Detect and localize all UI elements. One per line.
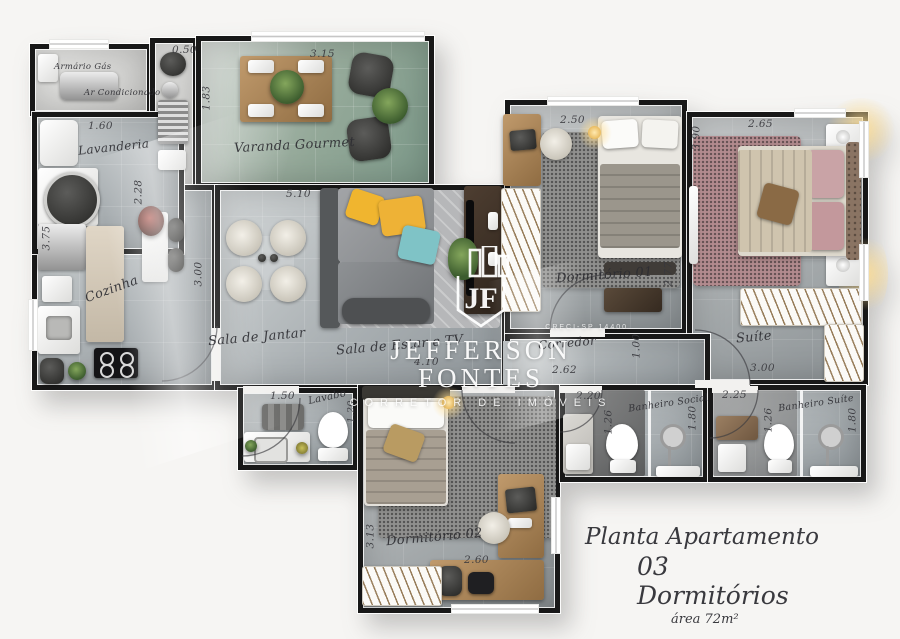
- window-suite-right-2: [860, 245, 868, 300]
- floor-plan-canvas: 0.50 3.15 1.83 1.60 2.28 3.75 5.10 3.00 …: [0, 0, 900, 639]
- title-line2: 03 Dormitórios: [637, 552, 825, 610]
- table-plant: [270, 70, 304, 104]
- watermark-creci: CRECI-SP 14400: [545, 324, 628, 331]
- monitor: [505, 486, 537, 513]
- shaft-box: [158, 150, 186, 170]
- label-suite: Suíte: [735, 328, 772, 346]
- window-suite-right-1: [860, 122, 868, 177]
- bsuite-sink: [718, 444, 746, 472]
- valve: [162, 82, 178, 98]
- bed-blanket: [600, 164, 680, 248]
- keyboard: [508, 518, 532, 528]
- dim-suite-bottom: 3.00: [750, 362, 775, 374]
- dining-chair: [270, 266, 306, 302]
- toilet-tank: [768, 460, 792, 473]
- title-block: Planta Apartamento 03 Dormitórios área 7…: [585, 524, 825, 627]
- nightstand-lamp: [836, 258, 850, 272]
- suite-wardrobe-h: [740, 288, 862, 326]
- placemat: [298, 60, 324, 73]
- dim-bsuite-depth: 1.26: [762, 408, 774, 433]
- kitchen-sink-basin: [46, 316, 72, 340]
- dining-chair: [270, 220, 306, 256]
- window-cozinha: [29, 300, 37, 350]
- label-ar-condicionado: Ar Condicionado: [84, 88, 160, 98]
- window-varanda: [252, 32, 424, 41]
- suite-wardrobe-v: [824, 324, 864, 382]
- toilet-tank: [318, 448, 348, 461]
- stool: [168, 248, 184, 272]
- burner: [120, 364, 134, 378]
- kitchen-plant: [68, 362, 86, 380]
- laundry-sink: [40, 120, 78, 166]
- side-chair: [468, 572, 494, 594]
- dim-bsuite-inner: 1.80: [846, 408, 858, 433]
- cup: [258, 254, 266, 262]
- shower-head: [660, 424, 686, 450]
- suite-headboard: [846, 142, 861, 260]
- towel-shelf: [262, 404, 304, 430]
- jf-logo-icon: JF: [444, 246, 518, 332]
- dim-dorm1-width: 2.50: [560, 114, 585, 126]
- placemat: [248, 104, 274, 117]
- watermark-brand: JEFFERSON FONTES: [390, 335, 572, 393]
- dim-varanda-depth: 1.83: [200, 86, 212, 111]
- trash-bin: [40, 358, 64, 384]
- dim-suite-depth: 3.90: [690, 126, 702, 151]
- title-line1: Planta Apartamento: [585, 524, 825, 550]
- jf-monogram: JF: [464, 282, 497, 315]
- dim-bsocial-depth: 1.26: [602, 410, 614, 435]
- burner: [100, 364, 114, 378]
- counter-flowers: [138, 206, 164, 236]
- lavabo-sink: [254, 437, 288, 463]
- lavabo-plant: [245, 440, 257, 452]
- bed-pillow: [641, 119, 678, 149]
- dim-dorm2-depth: 3.13: [364, 524, 376, 549]
- dorm2-wardrobe: [362, 566, 442, 606]
- window-dorm2-bottom: [452, 605, 538, 613]
- suite-pillow-pink: [808, 202, 844, 250]
- toilet-lavabo: [318, 412, 348, 448]
- title-line3: área 72m²: [671, 612, 825, 627]
- radiator-coil: [158, 100, 188, 144]
- placemat: [298, 104, 324, 117]
- lavabo-plant: [296, 442, 308, 454]
- window-suite-top: [795, 109, 845, 117]
- window-gas-closet: [50, 40, 108, 48]
- label-armario-gas: Armário Gás: [54, 62, 111, 72]
- dim-varanda-width: 3.15: [310, 48, 335, 60]
- dim-bsuite-width: 2.25: [722, 389, 747, 401]
- washing-machine: [44, 172, 100, 228]
- suite-pillow-pink: [808, 150, 844, 198]
- dim-dorm1-depth: 2.77: [662, 262, 674, 287]
- varanda-plant: [372, 88, 408, 124]
- toilet-tank: [610, 460, 636, 473]
- dim-cozinha-depth: 3.75: [40, 226, 52, 251]
- dim-suite-width: 2.65: [748, 118, 773, 130]
- dim-lavanderia-depth: 2.28: [132, 180, 144, 205]
- shower-head: [818, 424, 844, 450]
- cup: [270, 254, 278, 262]
- shower-ledge: [810, 466, 858, 477]
- dining-chair: [226, 220, 262, 256]
- shower-ledge: [656, 466, 700, 477]
- laptop: [509, 129, 537, 151]
- dim-bsocial-inner: 1.80: [686, 406, 698, 431]
- ceiling-light: [588, 126, 601, 139]
- dim-lavanderia-width: 1.60: [88, 120, 113, 132]
- dim-sala-depth: 3.00: [192, 262, 204, 287]
- watermark-brand-row: CRECI-SP 14400 JEFFERSON FONTES: [328, 336, 634, 393]
- window-dorm1: [548, 97, 638, 105]
- dim-dorm2-width: 2.60: [464, 554, 489, 566]
- watermark: JF CRECI-SP 14400 JEFFERSON FONTES CORRE…: [328, 246, 634, 409]
- dim-sala-width: 5.10: [286, 188, 311, 200]
- suite-tv-panel: [689, 186, 698, 264]
- bsocial-sink: [566, 444, 590, 470]
- dim-shaft-width: 0.50: [172, 44, 197, 56]
- desk-chair: [540, 128, 572, 160]
- media-device: [488, 212, 498, 230]
- window-dorm2-right: [552, 498, 560, 553]
- dim-lavabo-width: 1.50: [270, 390, 295, 402]
- shower-stem: [826, 446, 829, 468]
- dining-chair: [226, 266, 262, 302]
- stool: [168, 218, 184, 242]
- shower-stem: [668, 446, 671, 468]
- placemat: [248, 60, 274, 73]
- watermark-tagline: CORRETOR DE IMÓVEIS: [328, 397, 634, 409]
- oven: [42, 276, 72, 302]
- bsuite-counter: [716, 416, 758, 440]
